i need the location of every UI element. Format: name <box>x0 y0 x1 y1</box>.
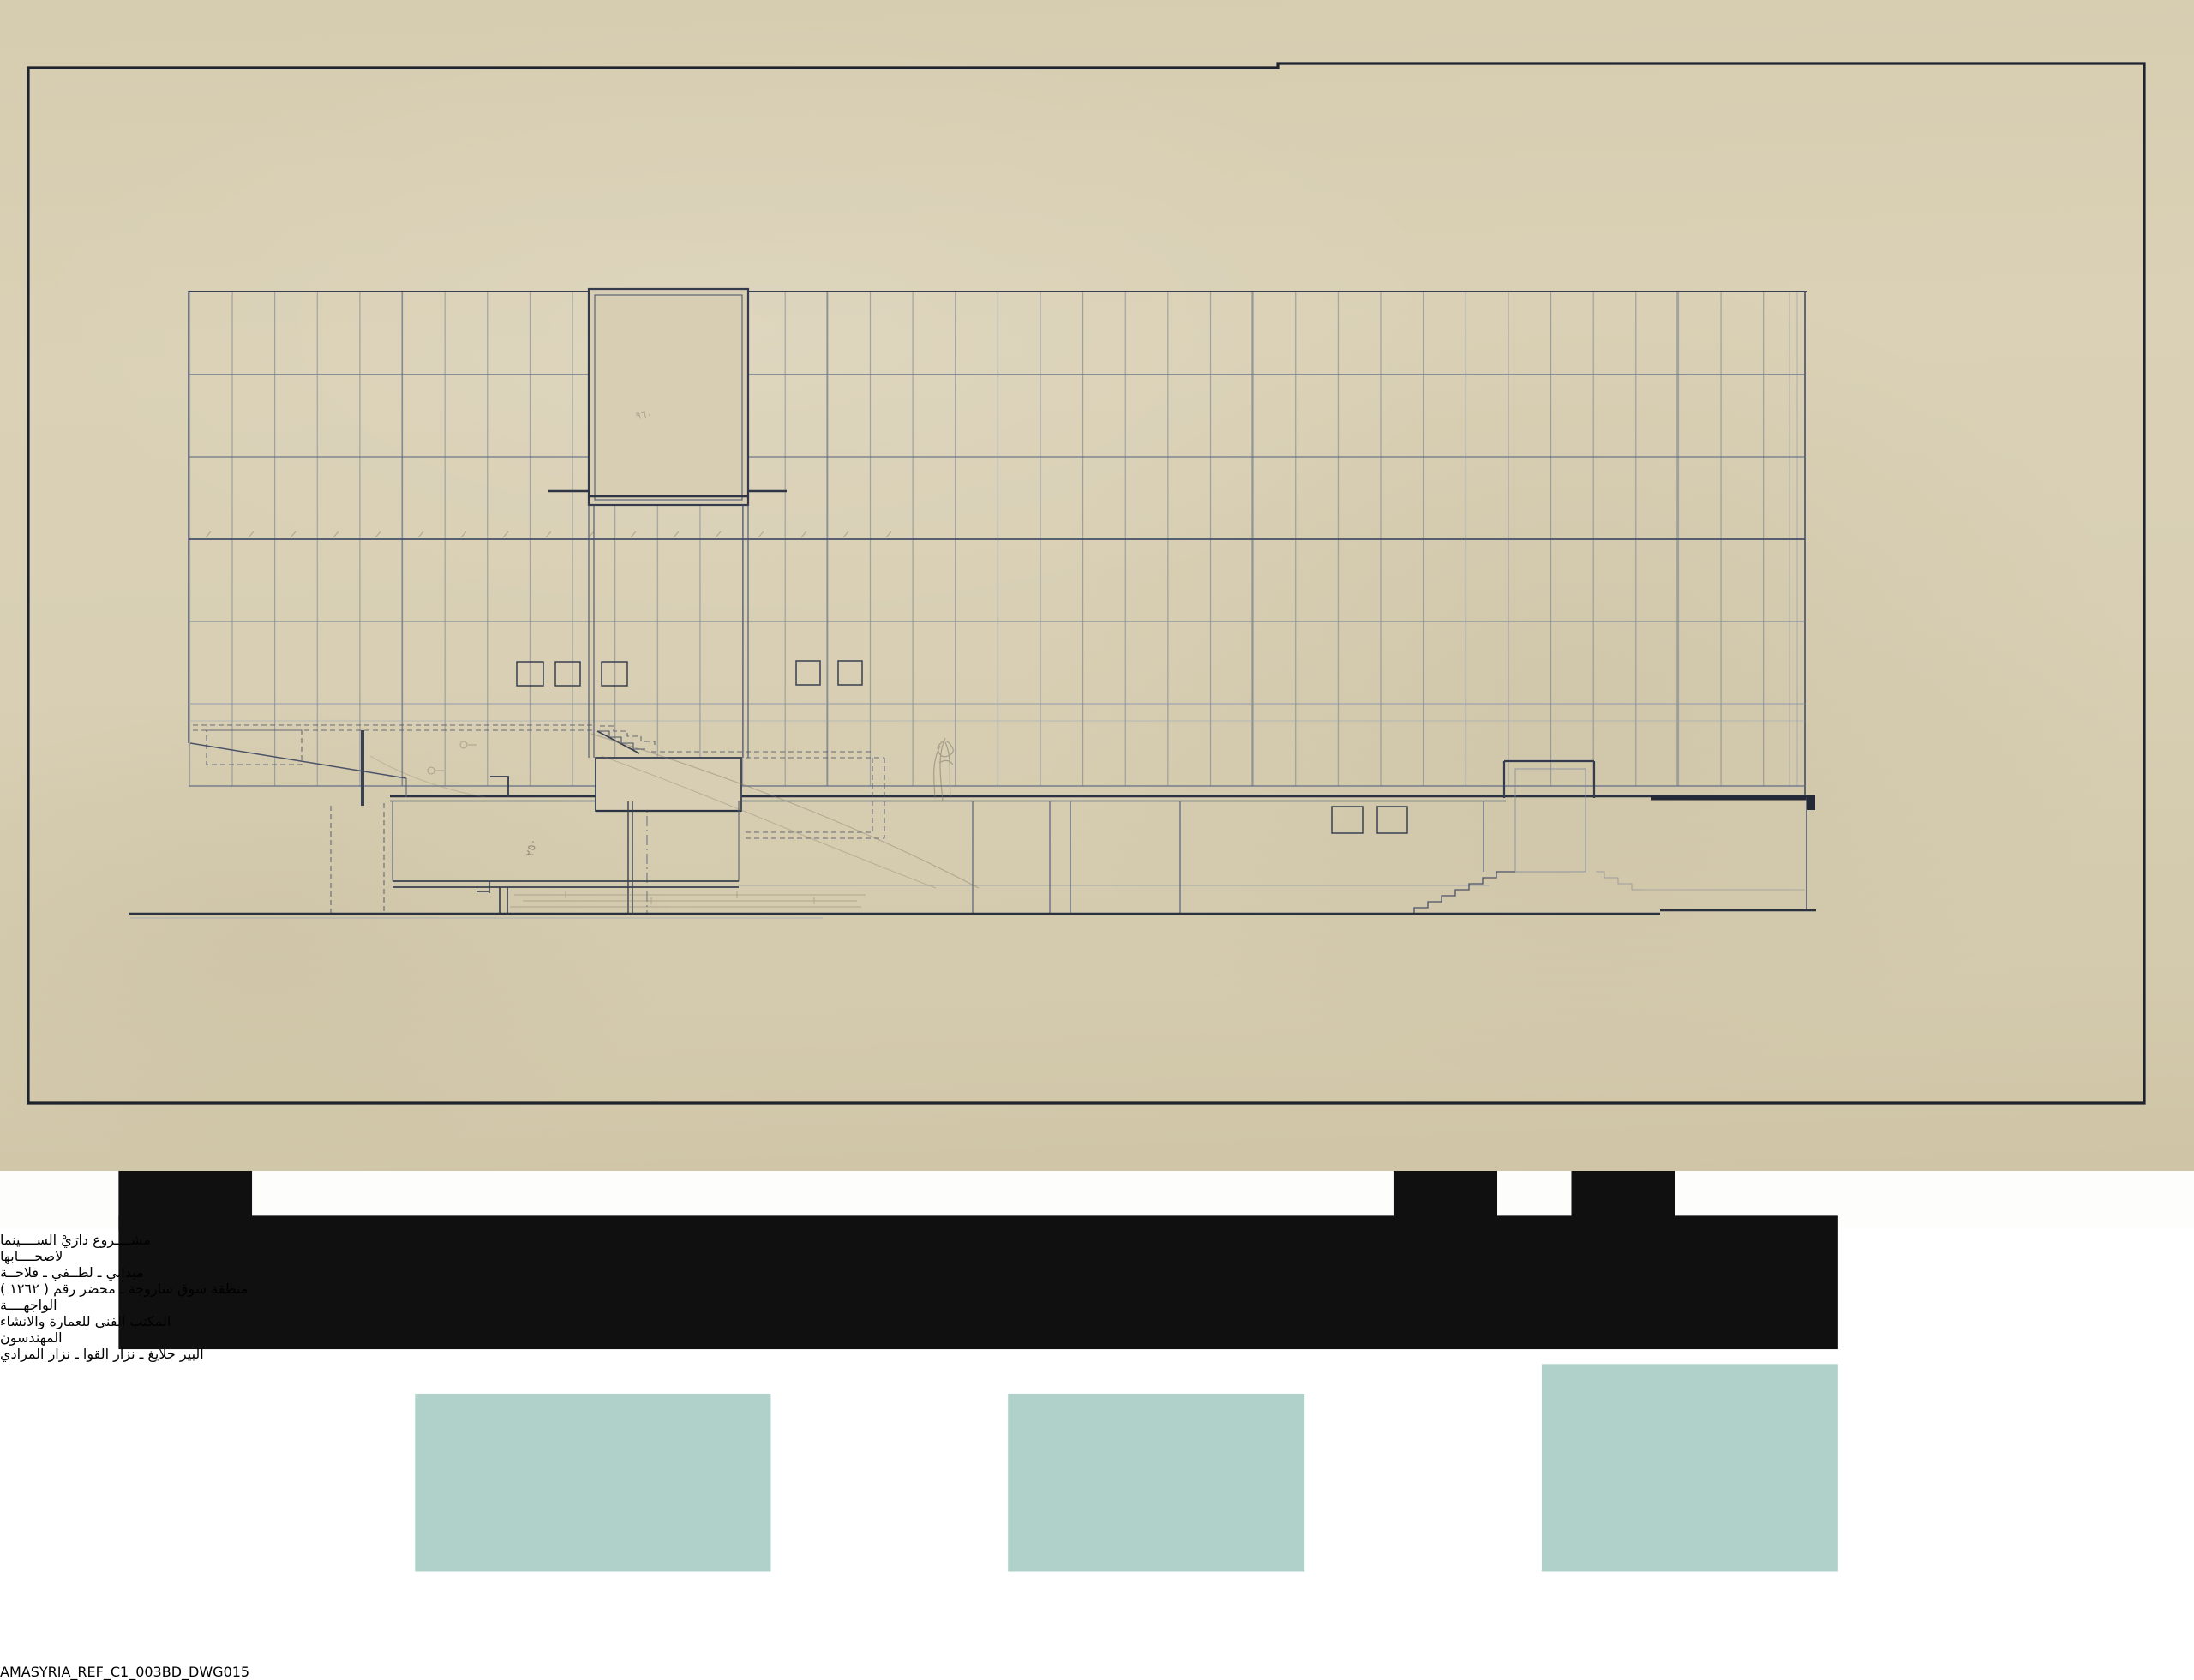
pencil-dimension-250: ٢٥٠ <box>524 837 540 858</box>
facade-grid <box>189 291 1807 797</box>
drawing-reference-label: AMASYRIA_REF_C1_003BD_DWG015 <box>0 1664 2194 1680</box>
pencil-dimension-960: ٩٦٠ <box>635 408 653 422</box>
owners-names: ميداني ـ لطــفي ـ فلاحــة <box>0 1264 2194 1281</box>
paper-sheet: ٢٥٠ ٩٦٠ مشــــروع دارَيْ الســــينما لاص… <box>0 0 2194 1171</box>
project-title: مشــــروع دارَيْ الســــينما <box>0 1232 2194 1248</box>
scan-canvas: ٢٥٠ ٩٦٠ مشــــروع دارَيْ الســــينما لاص… <box>0 0 2194 1228</box>
title-block: مشــــروع دارَيْ الســــينما لاصحــــابه… <box>0 1232 2194 1362</box>
engineers-names: البير جلايغ ـ نزار القوا ـ نزار المرادي <box>0 1346 2194 1362</box>
elevation-drawing: ٢٥٠ ٩٦٠ <box>0 0 2194 1228</box>
office-name: المكتب الفني للعمارة والانشاء <box>0 1313 2194 1329</box>
sheet-content: ٢٥٠ ٩٦٠ مشــــروع دارَيْ الســــينما لاص… <box>0 0 2194 1362</box>
small-windows-ground <box>1332 807 1407 833</box>
entrance-stairs <box>1400 872 1805 914</box>
ground-wall-piers <box>628 797 1807 914</box>
engineers-label: المهندسون <box>0 1329 2194 1346</box>
project-subtitle: لاصحــــابها <box>0 1248 2194 1264</box>
lower-slab <box>393 801 1490 914</box>
sheet-name: الواجهــــة <box>0 1297 2194 1313</box>
district-record-line: منطقة سوق ساروجة ـ محضر رقم ( ١٢٦٢ ) <box>0 1281 2194 1297</box>
